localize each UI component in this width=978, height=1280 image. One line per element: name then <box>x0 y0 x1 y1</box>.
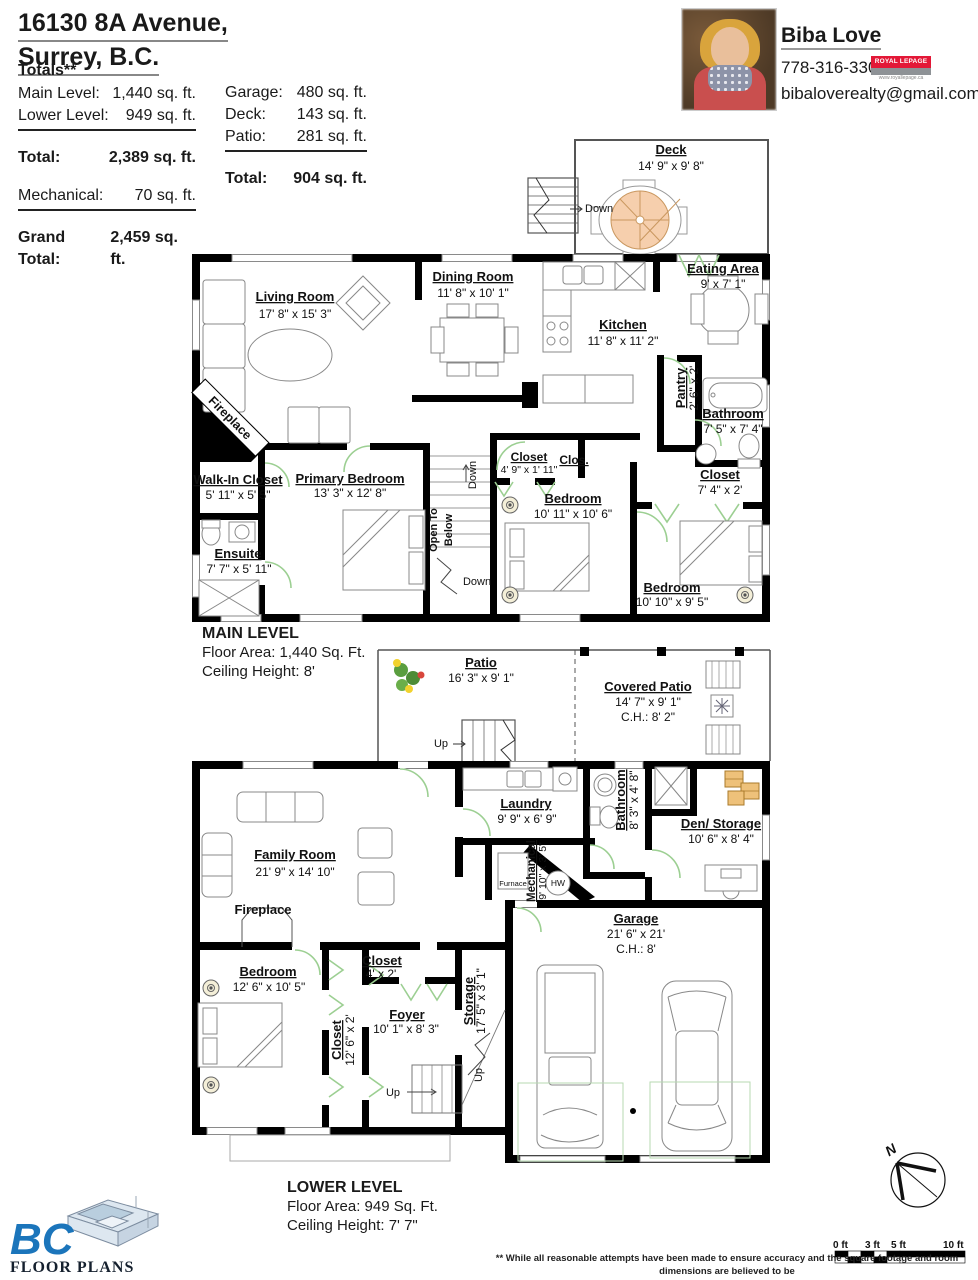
stairs-down-label: Down <box>585 203 613 215</box>
row-value: 2,459 sq. ft. <box>110 227 196 271</box>
row-label: Deck: <box>225 104 266 126</box>
furnace-label: Furnace <box>499 879 527 888</box>
covered-patio-furniture <box>706 661 740 754</box>
scale-0ft: 0 ft <box>833 1240 849 1251</box>
room-label-foyer: Foyer <box>389 1007 424 1022</box>
lower-level-ceiling: Ceiling Height: 7' 7" <box>287 1216 438 1235</box>
total-row: Lower Level:949 sq. ft. <box>18 105 196 127</box>
room-label-bedroom-right: Bedroom <box>643 580 700 595</box>
lower-level-caption: LOWER LEVEL Floor Area: 949 Sq. Ft. Ceil… <box>287 1178 438 1235</box>
agent-name-text: Biba Love <box>781 24 881 50</box>
hw-label: HW <box>551 878 565 888</box>
room-dims-storage: 17' 5" x 3' 1" <box>474 968 488 1034</box>
room-label-bedroom-middle: Bedroom <box>544 491 601 506</box>
logo-floorplans-text: FLOOR PLANS <box>10 1259 134 1276</box>
room-dims-closet-hall: 7' 4" x 2' <box>698 483 743 497</box>
lower-level-floor-area: Floor Area: 949 Sq. Ft. <box>287 1197 438 1216</box>
room-label-garage: Garage <box>614 911 659 926</box>
stairs-open-to-label: Open To <box>428 508 440 552</box>
deck-table-set <box>591 180 687 260</box>
room-dims-mechanical: 9' 10" x 3' 5" <box>537 842 549 900</box>
room-label-lower-bedroom: Bedroom <box>239 964 296 979</box>
room-dims-foyer: 10' 1" x 8' 3" <box>373 1022 439 1036</box>
room-dims-bedroom-middle: 10' 11" x 10' 6" <box>534 507 612 521</box>
main-level-plan: Deck 14' 9" x 9' 8" Down <box>185 130 785 645</box>
room-label-closet-tall: Closet <box>329 1019 344 1059</box>
lower-pad-outline <box>230 1135 450 1161</box>
totals-title: Totals** <box>18 62 196 80</box>
room-dims-family: 21' 9" x 14' 10" <box>255 865 334 879</box>
room-label-deck: Deck <box>655 142 687 157</box>
scale-10ft: 10 ft <box>943 1240 964 1251</box>
total-row: Mechanical:70 sq. ft. <box>18 185 196 207</box>
stairs-up-label: Up <box>434 738 448 750</box>
disclaimer-line1: ** While all reasonable attempts have be… <box>478 1252 976 1278</box>
room-label-living: Living Room <box>256 289 335 304</box>
row-label: Lower Level: <box>18 105 109 127</box>
row-value: 1,440 sq. ft. <box>112 83 196 105</box>
patio-posts <box>580 647 744 656</box>
row-label: Grand Total: <box>18 227 110 271</box>
room-ch-covered-patio: C.H.: 8' 2" <box>621 710 675 724</box>
room-label-lower-fireplace: Fireplace <box>234 902 291 917</box>
bc-floor-plans-logo: BC FLOOR PLANS <box>8 1188 168 1278</box>
row-value: 2,389 sq. ft. <box>109 147 196 169</box>
scale-5ft: 5 ft <box>891 1240 907 1251</box>
room-ch-garage: C.H.: 8' <box>616 942 656 956</box>
stairs-down-label: Down <box>467 461 479 489</box>
logo-iso-plan <box>68 1196 158 1246</box>
address-line1: 16130 8A Avenue, <box>18 8 228 42</box>
room-label-primary: Primary Bedroom <box>295 471 404 486</box>
stairs-up-label: Up <box>473 1068 485 1082</box>
room-label-bathroom: Bathroom <box>702 406 763 421</box>
room-label-walk-in: Walk-In Closet <box>193 472 283 487</box>
room-label-lower-bathroom: Bathroom <box>613 769 628 830</box>
room-dims-lower-bedroom: 12' 6" x 10' 5" <box>233 980 305 994</box>
lower-level-plan: Patio 16' 3" x 9' 1" Up Covered Patio 14… <box>185 645 790 1173</box>
room-dims-kitchen: 11' 8" x 11' 2" <box>588 334 659 348</box>
brand-site: www.royallepage.ca <box>871 75 931 82</box>
room-dims-bathroom: 7' 5" x 7' 4" <box>703 422 762 436</box>
row-value: 143 sq. ft. <box>297 104 367 126</box>
room-label-den: Den/ Storage <box>681 816 761 831</box>
total-row: Grand Total:2,459 sq. ft. <box>18 227 196 271</box>
agent-email: bibaloverealty@gmail.com <box>781 84 978 104</box>
room-dims-ensuite: 7' 7" x 5' 11" <box>207 562 272 576</box>
room-dims-closet-bedroom: 4' 9" x 1' 11" <box>501 464 558 476</box>
brand-bar <box>871 68 931 75</box>
lower-level-title: LOWER LEVEL <box>287 1178 438 1197</box>
room-label-closet-bedroom: Closet <box>511 450 548 464</box>
room-label-dining: Dining Room <box>433 269 514 284</box>
room-label-kitchen: Kitchen <box>599 317 647 332</box>
compass-n-label: N <box>882 1140 900 1159</box>
row-label: Garage: <box>225 82 283 104</box>
room-dims-bedroom-right: 10' 10" x 9' 5" <box>636 595 708 609</box>
scale-3ft: 3 ft <box>865 1240 881 1251</box>
room-label-ensuite: Ensuite <box>215 546 262 561</box>
total-row: Garage:480 sq. ft. <box>225 82 367 104</box>
room-dims-closet-tall: 12' 6" x 2' <box>343 1014 357 1066</box>
total-row: Total:2,389 sq. ft. <box>18 147 196 169</box>
room-dims-lower-bathroom: 8' 3" x 4' 8" <box>627 770 641 829</box>
garage-dot <box>630 1108 636 1114</box>
room-dims-eating: 9' x 7' 1" <box>701 277 746 291</box>
compass: N <box>880 1138 955 1213</box>
row-label: Main Level: <box>18 83 100 105</box>
room-dims-den: 10' 6" x 8' 4" <box>688 832 754 846</box>
total-row: Main Level:1,440 sq. ft. <box>18 83 196 105</box>
logo-bc-text: BC <box>10 1215 75 1264</box>
stairs-up-label: Up <box>386 1087 400 1099</box>
room-label-eating: Eating Area <box>687 261 760 276</box>
room-dims-covered-patio: 14' 7" x 9' 1" <box>615 695 681 709</box>
agent-name: Biba Love <box>781 24 881 48</box>
main-level-title: MAIN LEVEL <box>202 624 365 643</box>
stairs-below-label: Below <box>443 513 455 546</box>
room-label-family: Family Room <box>254 847 336 862</box>
brand-name: ROYAL LEPAGE <box>871 56 931 68</box>
room-dims-laundry: 9' 9" x 6' 9" <box>497 812 556 826</box>
room-label-pantry: Pantry <box>673 367 688 408</box>
room-dims-garage: 21' 6" x 21' <box>607 927 665 941</box>
row-value: 480 sq. ft. <box>297 82 367 104</box>
disclaimer: ** While all reasonable attempts have be… <box>478 1252 976 1280</box>
lower-furniture <box>198 767 757 1151</box>
agent-photo <box>681 8 777 111</box>
patio-flowers <box>391 659 425 693</box>
row-value: 949 sq. ft. <box>126 105 196 127</box>
room-dims-primary: 13' 3" x 12' 8" <box>314 486 386 500</box>
floor-plan-page: 16130 8A Avenue, Surrey, B.C. Totals** M… <box>0 0 978 1280</box>
room-dims-pantry: 2' 6" x 2' <box>687 366 701 411</box>
room-dims-walk-in: 5' 11" x 5' 5" <box>206 488 271 502</box>
room-dims-living: 17' 8" x 15' 3" <box>259 307 331 321</box>
room-dims-closet-small: 4' x 2' <box>366 967 397 981</box>
row-label: Total: <box>18 147 60 169</box>
room-label-closet-abbrev: Clos. <box>559 453 588 467</box>
room-dims-patio: 16' 3" x 9' 1" <box>448 671 514 685</box>
room-label-closet-hall: Closet <box>700 467 740 482</box>
royal-lepage-logo: ROYAL LEPAGE www.royallepage.ca <box>871 56 931 82</box>
storage-boxes <box>725 771 759 805</box>
totals-left-column: Totals** Main Level:1,440 sq. ft. Lower … <box>18 62 196 271</box>
room-label-patio: Patio <box>465 655 497 670</box>
room-dims-dining: 11' 8" x 10' 1" <box>437 286 509 300</box>
room-label-closet-small: Closet <box>362 953 402 968</box>
room-dims-deck: 14' 9" x 9' 8" <box>638 159 704 173</box>
room-label-laundry: Laundry <box>500 796 552 811</box>
total-row: Deck:143 sq. ft. <box>225 104 367 126</box>
stairs-down-label: Down <box>463 576 491 588</box>
row-label: Mechanical: <box>18 185 103 207</box>
room-label-covered-patio: Covered Patio <box>604 679 691 694</box>
